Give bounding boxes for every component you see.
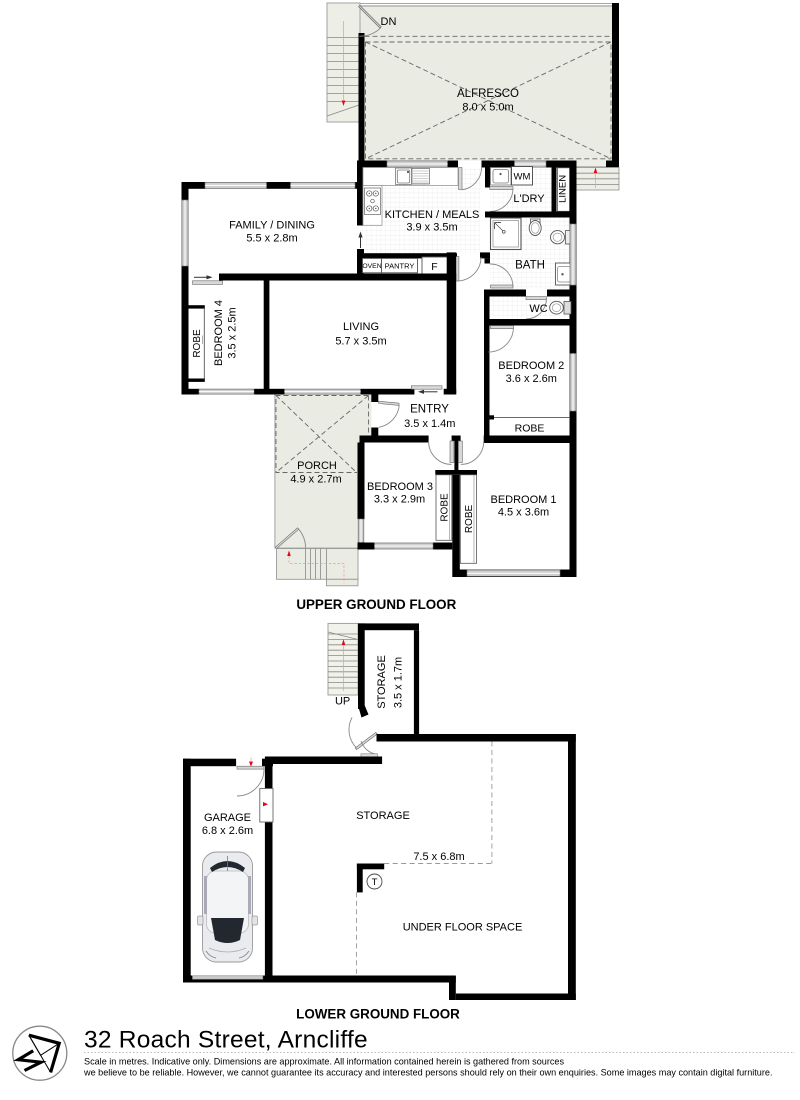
svg-text:KITCHEN / MEALS: KITCHEN / MEALS	[385, 209, 480, 221]
svg-text:4.9 x 2.7m: 4.9 x 2.7m	[290, 474, 341, 486]
svg-text:STORAGE: STORAGE	[376, 655, 388, 709]
svg-text:OVEN: OVEN	[362, 263, 381, 270]
svg-text:UP: UP	[335, 696, 350, 708]
svg-text:GARAGE: GARAGE	[204, 812, 251, 824]
svg-text:ROBE: ROBE	[515, 422, 545, 434]
svg-text:we believe to be reliable. How: we believe to be reliable. However, we c…	[83, 1067, 772, 1077]
svg-text:3.3 x 2.9m: 3.3 x 2.9m	[374, 494, 425, 506]
svg-text:WM: WM	[514, 171, 531, 182]
svg-text:F: F	[431, 261, 437, 273]
svg-text:4.5 x 3.6m: 4.5 x 3.6m	[498, 507, 549, 519]
svg-text:ROBE: ROBE	[192, 329, 203, 358]
svg-text:PORCH: PORCH	[297, 460, 337, 472]
svg-text:6.8 x 2.6m: 6.8 x 2.6m	[202, 825, 253, 837]
svg-text:FAMILY / DINING: FAMILY / DINING	[229, 220, 315, 232]
svg-text:DN: DN	[381, 16, 397, 28]
svg-text:32 Roach Street, Arncliffe: 32 Roach Street, Arncliffe	[84, 1027, 368, 1054]
svg-text:WC: WC	[529, 303, 547, 315]
svg-text:LIVING: LIVING	[343, 321, 379, 333]
svg-text:3.5 x 1.4m: 3.5 x 1.4m	[404, 418, 455, 430]
svg-text:STORAGE: STORAGE	[356, 810, 410, 822]
svg-text:3.5 x 2.5m: 3.5 x 2.5m	[226, 307, 238, 358]
svg-text:T: T	[372, 877, 378, 888]
svg-text:ALFRESCO: ALFRESCO	[457, 88, 519, 100]
svg-text:BEDROOM 3: BEDROOM 3	[367, 481, 433, 493]
svg-text:ROBE: ROBE	[439, 493, 450, 522]
svg-text:UNDER FLOOR SPACE: UNDER FLOOR SPACE	[403, 921, 523, 933]
svg-text:BEDROOM 1: BEDROOM 1	[490, 494, 556, 506]
svg-text:ENTRY: ENTRY	[410, 404, 449, 416]
svg-text:BEDROOM 2: BEDROOM 2	[498, 360, 564, 372]
svg-text:7.5 x 6.8m: 7.5 x 6.8m	[413, 851, 464, 863]
svg-text:8.0 x 5.0m: 8.0 x 5.0m	[462, 102, 513, 114]
svg-text:BEDROOM 4: BEDROOM 4	[213, 300, 225, 366]
svg-text:5.5 x 2.8m: 5.5 x 2.8m	[246, 233, 297, 245]
svg-text:LINEN: LINEN	[557, 175, 568, 203]
svg-text:LOWER GROUND FLOOR: LOWER GROUND FLOOR	[296, 1007, 460, 1022]
svg-text:UPPER GROUND FLOOR: UPPER GROUND FLOOR	[296, 597, 456, 612]
svg-text:L'DRY: L'DRY	[513, 193, 545, 205]
svg-text:PANTRY: PANTRY	[385, 261, 415, 270]
svg-text:3.6 x 2.6m: 3.6 x 2.6m	[506, 373, 557, 385]
svg-text:3.9 x 3.5m: 3.9 x 3.5m	[406, 222, 457, 234]
svg-text:ROBE: ROBE	[464, 505, 475, 534]
svg-text:Scale in metres. Indicative on: Scale in metres. Indicative only. Dimens…	[84, 1056, 564, 1066]
svg-text:5.7 x 3.5m: 5.7 x 3.5m	[335, 336, 386, 348]
svg-text:BATH: BATH	[515, 259, 545, 271]
svg-text:3.5 x 1.7m: 3.5 x 1.7m	[392, 657, 404, 708]
